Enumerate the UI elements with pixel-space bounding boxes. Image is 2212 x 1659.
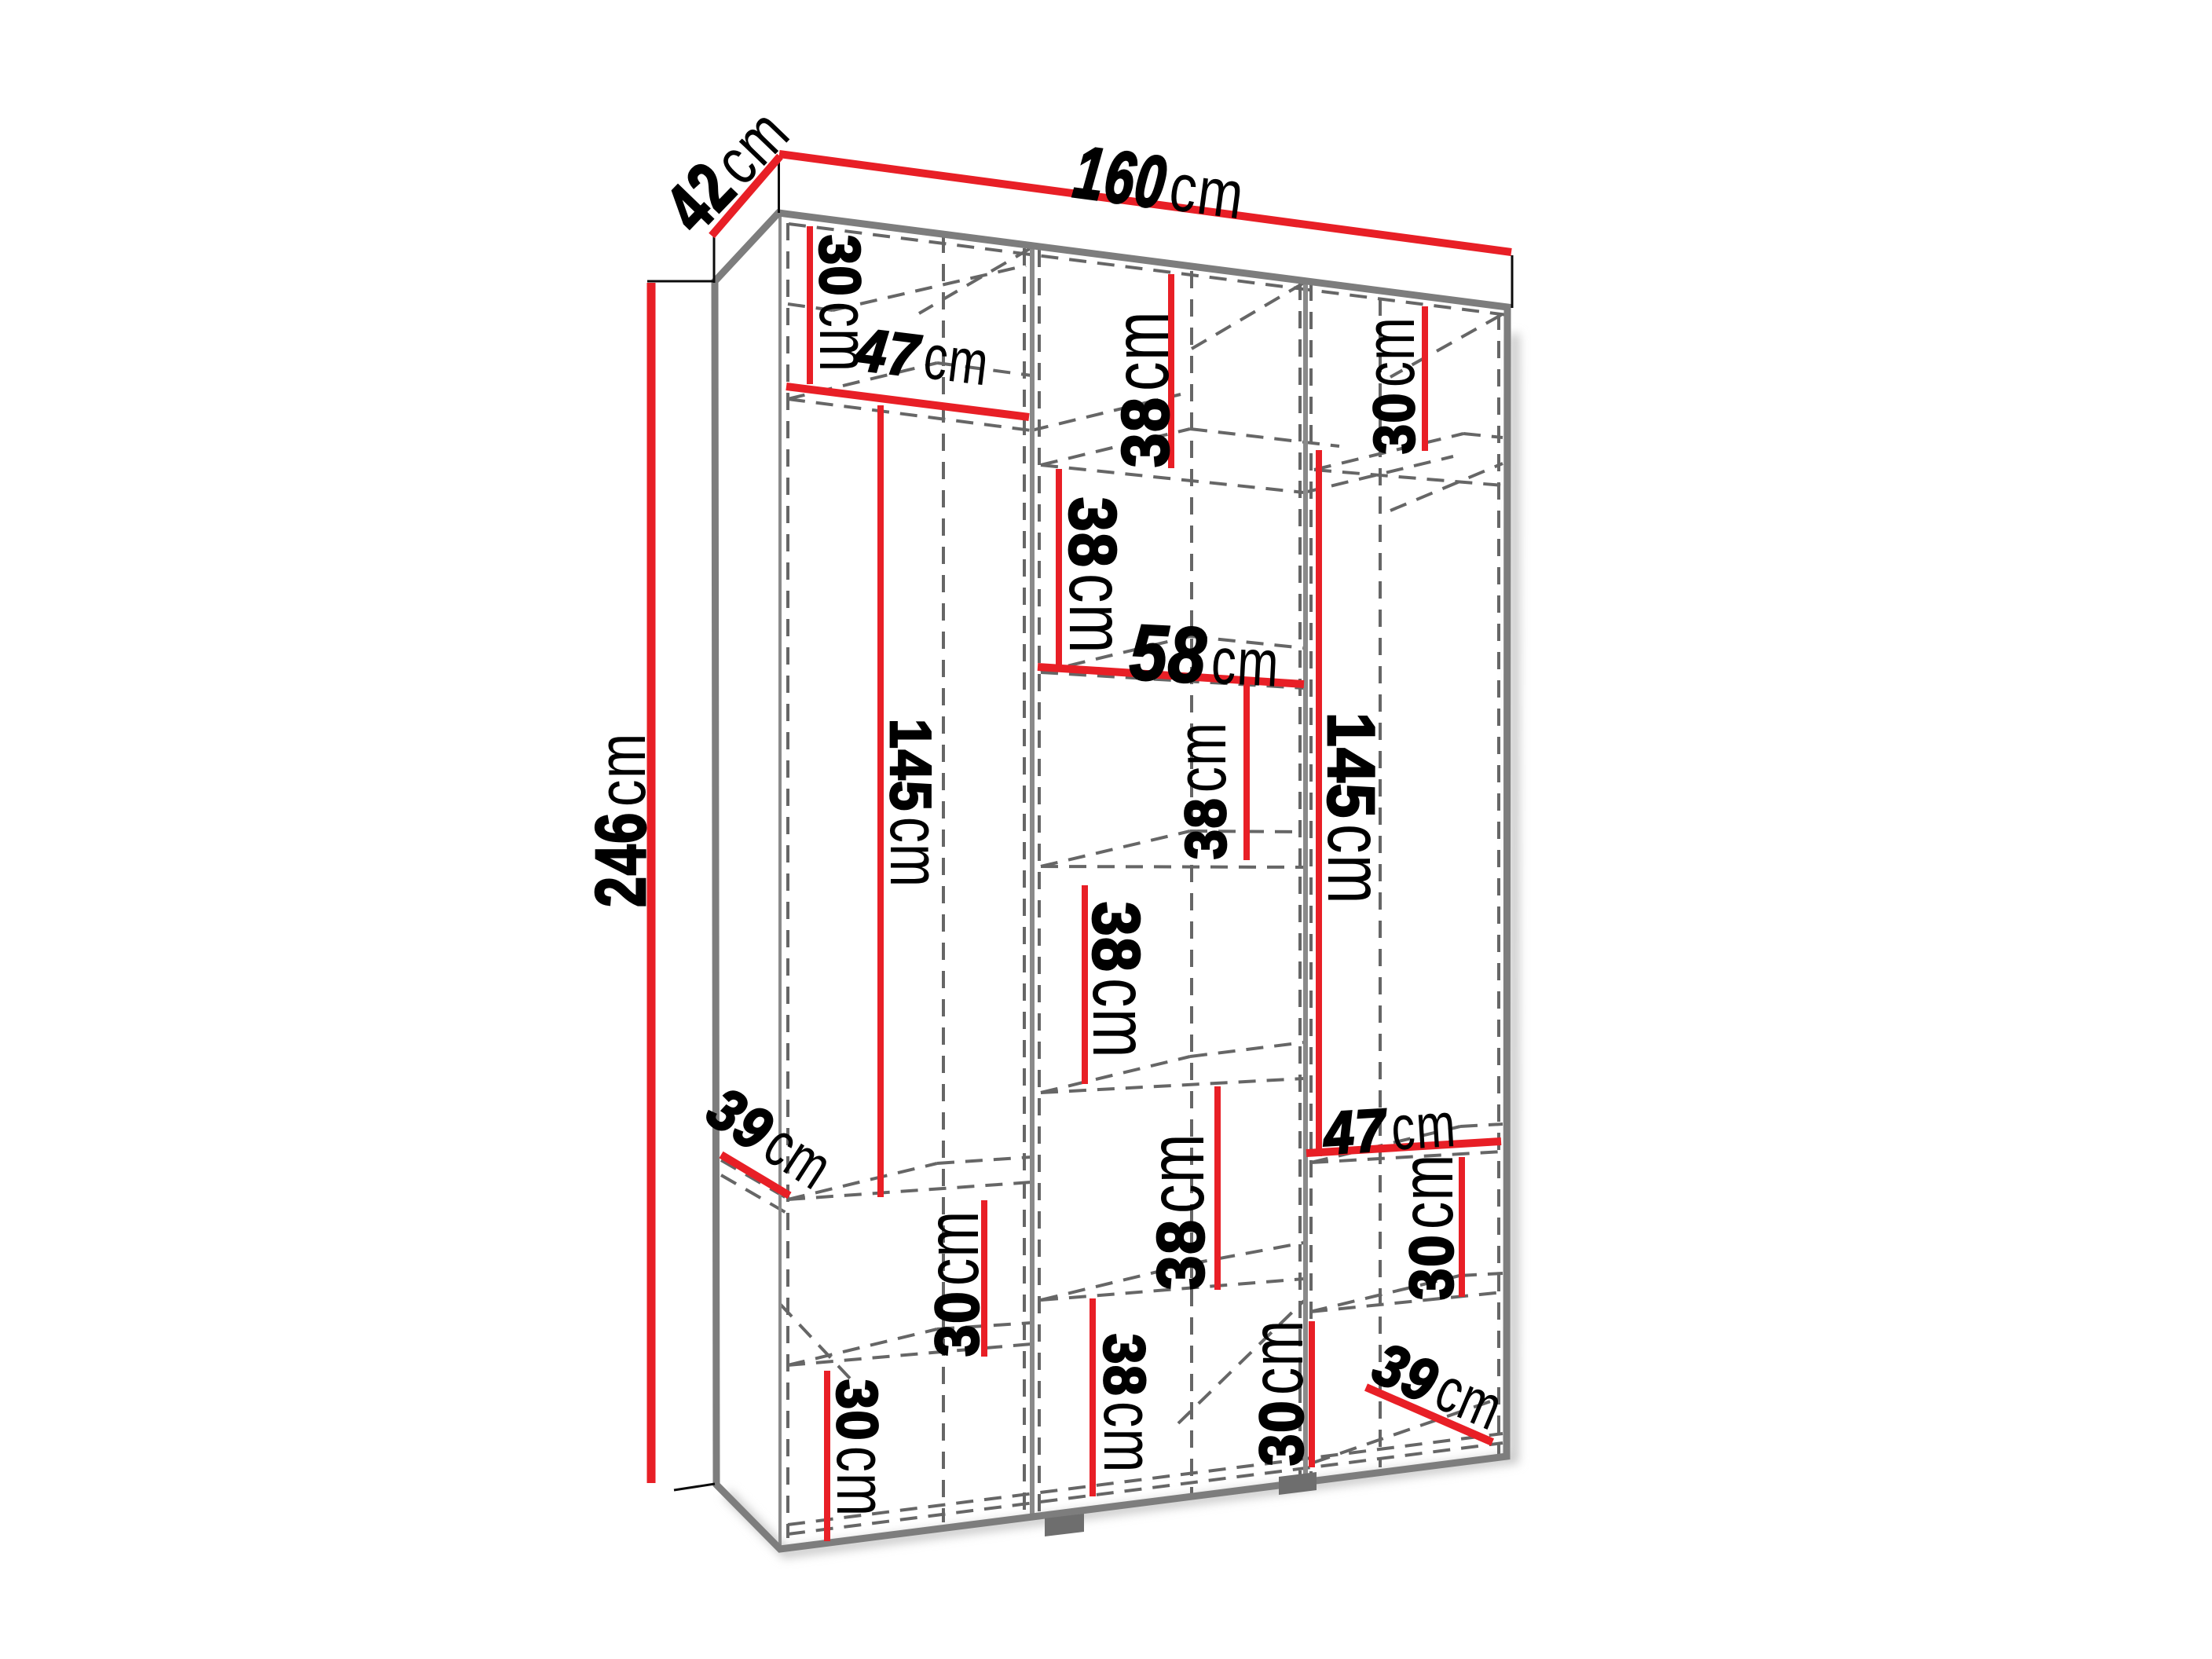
svg-text:47: 47	[1320, 1097, 1390, 1167]
svg-text:30: 30	[825, 1379, 889, 1441]
svg-text:145: 145	[1313, 712, 1386, 819]
svg-text:160: 160	[1069, 131, 1171, 225]
svg-text:cm: cm	[876, 817, 955, 888]
svg-text:cm: cm	[822, 1446, 902, 1517]
svg-text:cm: cm	[1165, 149, 1249, 234]
svg-text:cm: cm	[1162, 722, 1241, 793]
svg-text:cm: cm	[1210, 624, 1282, 701]
svg-text:cm: cm	[1090, 1401, 1169, 1474]
svg-text:38: 38	[1174, 797, 1238, 859]
svg-text:cm: cm	[1097, 310, 1185, 391]
svg-text:145: 145	[878, 719, 943, 812]
svg-text:cm: cm	[1389, 1089, 1458, 1163]
svg-text:cm: cm	[1132, 1133, 1220, 1214]
svg-text:38: 38	[1079, 902, 1152, 973]
svg-text:cm: cm	[920, 321, 993, 399]
svg-text:cm: cm	[1053, 573, 1141, 654]
svg-text:cm: cm	[584, 732, 660, 807]
svg-text:cm: cm	[1077, 978, 1165, 1059]
svg-text:cm: cm	[1312, 824, 1400, 905]
svg-text:38: 38	[1055, 497, 1128, 569]
svg-text:38: 38	[1091, 1334, 1156, 1397]
svg-text:30: 30	[1362, 392, 1426, 454]
svg-text:38: 38	[1144, 1218, 1218, 1290]
svg-text:30: 30	[1397, 1234, 1466, 1300]
svg-text:38: 38	[1109, 396, 1182, 467]
svg-text:cm: cm	[1235, 1319, 1319, 1395]
svg-text:cm: cm	[910, 1210, 994, 1286]
svg-text:30: 30	[1247, 1400, 1316, 1466]
svg-text:cm: cm	[1385, 1153, 1469, 1229]
svg-text:58: 58	[1128, 608, 1210, 700]
svg-text:30: 30	[923, 1291, 991, 1357]
svg-text:246: 246	[582, 811, 661, 907]
svg-text:cm: cm	[1350, 317, 1430, 387]
svg-text:47: 47	[851, 317, 925, 390]
svg-text:30: 30	[808, 235, 872, 297]
